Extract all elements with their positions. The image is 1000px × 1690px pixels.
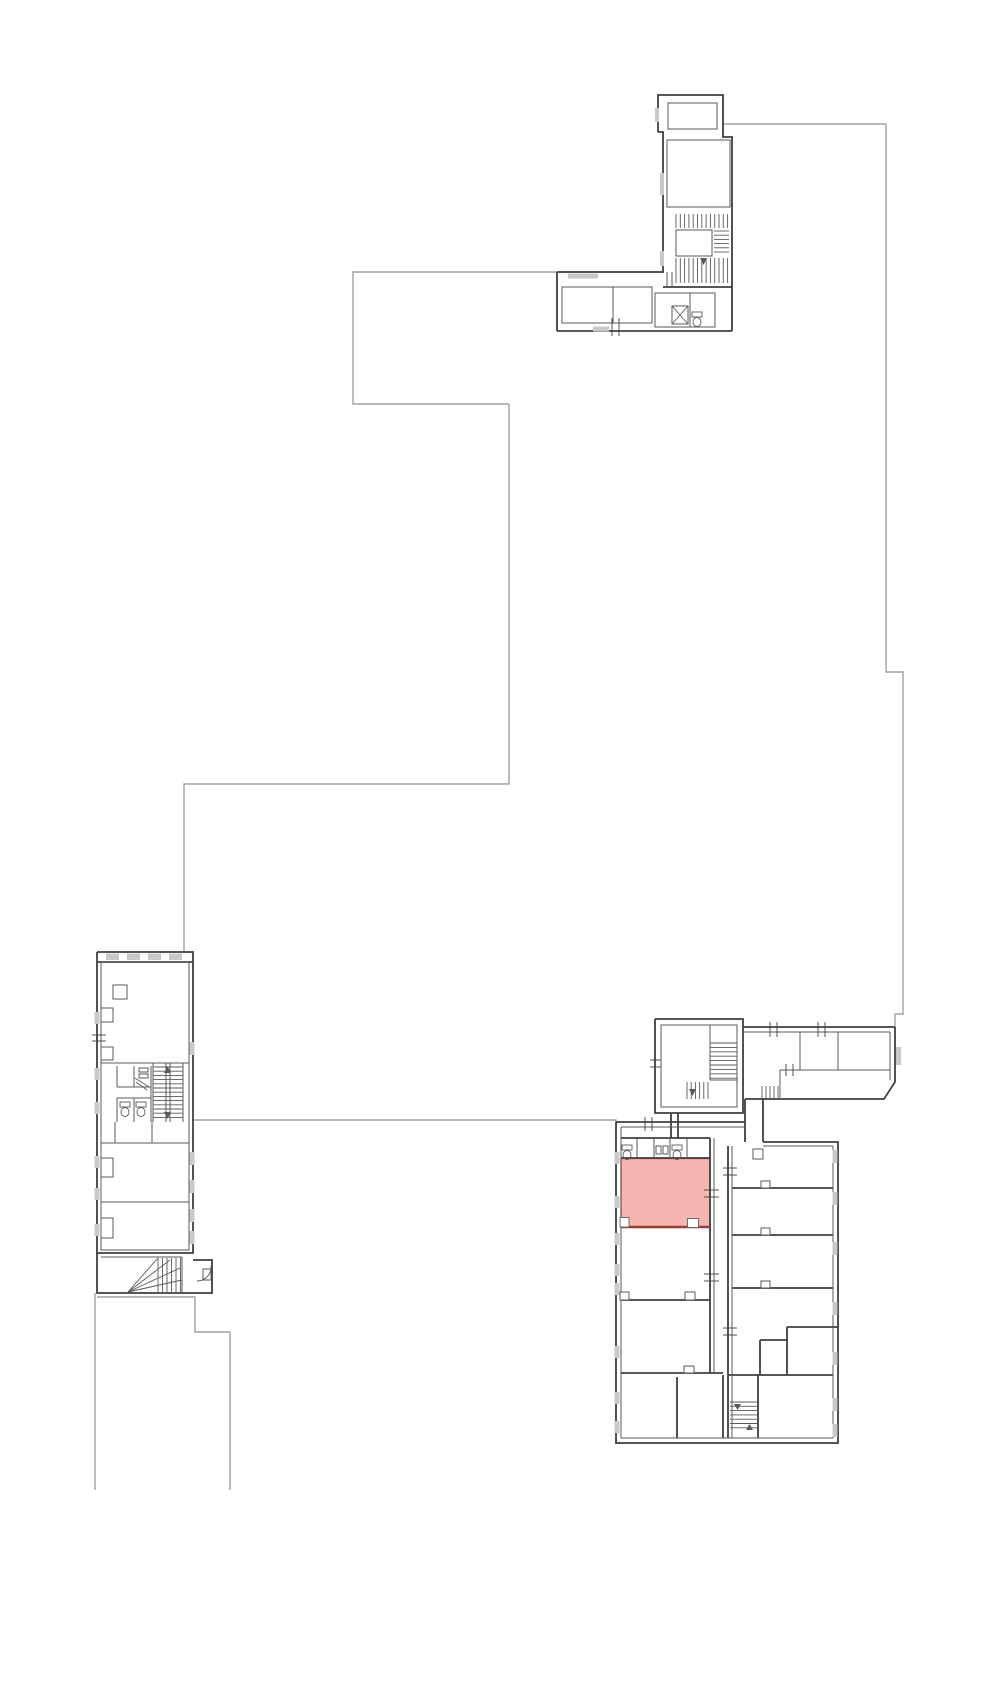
wall [745,1027,895,1099]
window-mark [833,1424,838,1437]
room-outline [667,140,730,207]
toilet-fixture [672,1145,682,1150]
wall [97,1253,212,1293]
detail-diagonal [128,1268,180,1292]
window-mark [95,1224,100,1236]
sink-fixture [139,1068,148,1072]
window-mark [615,1196,620,1208]
parcel-boundary-line [193,1120,616,1124]
fixture-mark [656,1146,661,1154]
window-mark [833,1150,838,1163]
pillar-notch [684,1366,694,1373]
window-mark [615,1283,620,1295]
window-mark [95,1188,100,1200]
window-mark [190,1042,195,1055]
toilet-fixture [120,1102,130,1107]
column [113,985,127,999]
stair-tower-inner [661,1025,737,1107]
toilet-fixture [692,312,702,317]
wall [655,1019,743,1113]
pillar-notch [620,1292,629,1300]
room-outline [613,287,652,323]
window-mark [95,1102,100,1114]
stair-direction-arrow [734,1404,741,1410]
wall-pilaster [101,1047,113,1060]
room-outline [562,287,613,323]
window-mark [615,1346,620,1358]
window-mark [95,1068,100,1080]
door-notch [761,1228,770,1235]
wall-pilaster [101,1218,113,1238]
column [753,1149,763,1159]
parcel-boundary-line [184,404,509,952]
window-mark [615,1152,620,1164]
highlight-notch [688,1219,699,1228]
window-mark [615,1392,620,1404]
window-mark [660,173,664,195]
floor-plan-svg [0,0,1000,1690]
highlight-notch [620,1218,629,1228]
window-mark [95,1156,100,1168]
parcel-boundary-line [353,272,557,404]
toilet-fixture [693,318,701,327]
wall-pilaster [101,1008,113,1022]
window-mark [615,1421,620,1433]
window-mark [833,1242,838,1255]
window-mark [190,1231,195,1244]
parcel-boundary-line [886,124,903,1027]
room-outline [668,103,717,129]
left-building-inner [101,962,189,1250]
door-leaf [203,1269,211,1280]
window-mark [190,1180,195,1193]
wall [97,952,193,1253]
window-mark [615,1233,620,1245]
window-mark [615,1264,620,1276]
toilet-fixture [136,1102,146,1107]
door-notch [761,1181,770,1188]
detail-diagonal [128,1258,158,1292]
stair-direction-arrow [746,1424,753,1430]
window-mark [169,954,182,961]
window-mark [127,954,140,961]
window-mark [95,1012,100,1024]
window-mark [593,327,609,332]
stair-landing [676,230,712,256]
window-mark [833,1302,838,1315]
sink-fixture [139,1074,148,1078]
window-mark [896,1047,901,1065]
wall-pilaster [101,1158,113,1177]
toilet-fixture [137,1108,145,1117]
door-notch [761,1281,770,1288]
window-mark [568,274,598,279]
detail-diagonal [136,1082,147,1090]
door-swing-arc [197,1266,211,1281]
floor-plan-viewport [0,0,1000,1690]
toilet-fixture [121,1108,129,1117]
window-mark [660,251,664,266]
window-mark [148,954,161,961]
window-mark [190,1152,195,1165]
toilet-fixture [622,1145,632,1150]
window-mark [833,1192,838,1205]
window-mark [833,1398,838,1411]
window-mark [833,1352,838,1365]
highlighted-room[interactable] [621,1159,710,1228]
window-mark [655,108,659,122]
parcel-boundary-line [97,1297,230,1490]
window-mark [106,954,119,961]
fixture-mark [663,1146,668,1154]
pillar-notch [685,1292,695,1300]
window-mark [190,1209,195,1222]
